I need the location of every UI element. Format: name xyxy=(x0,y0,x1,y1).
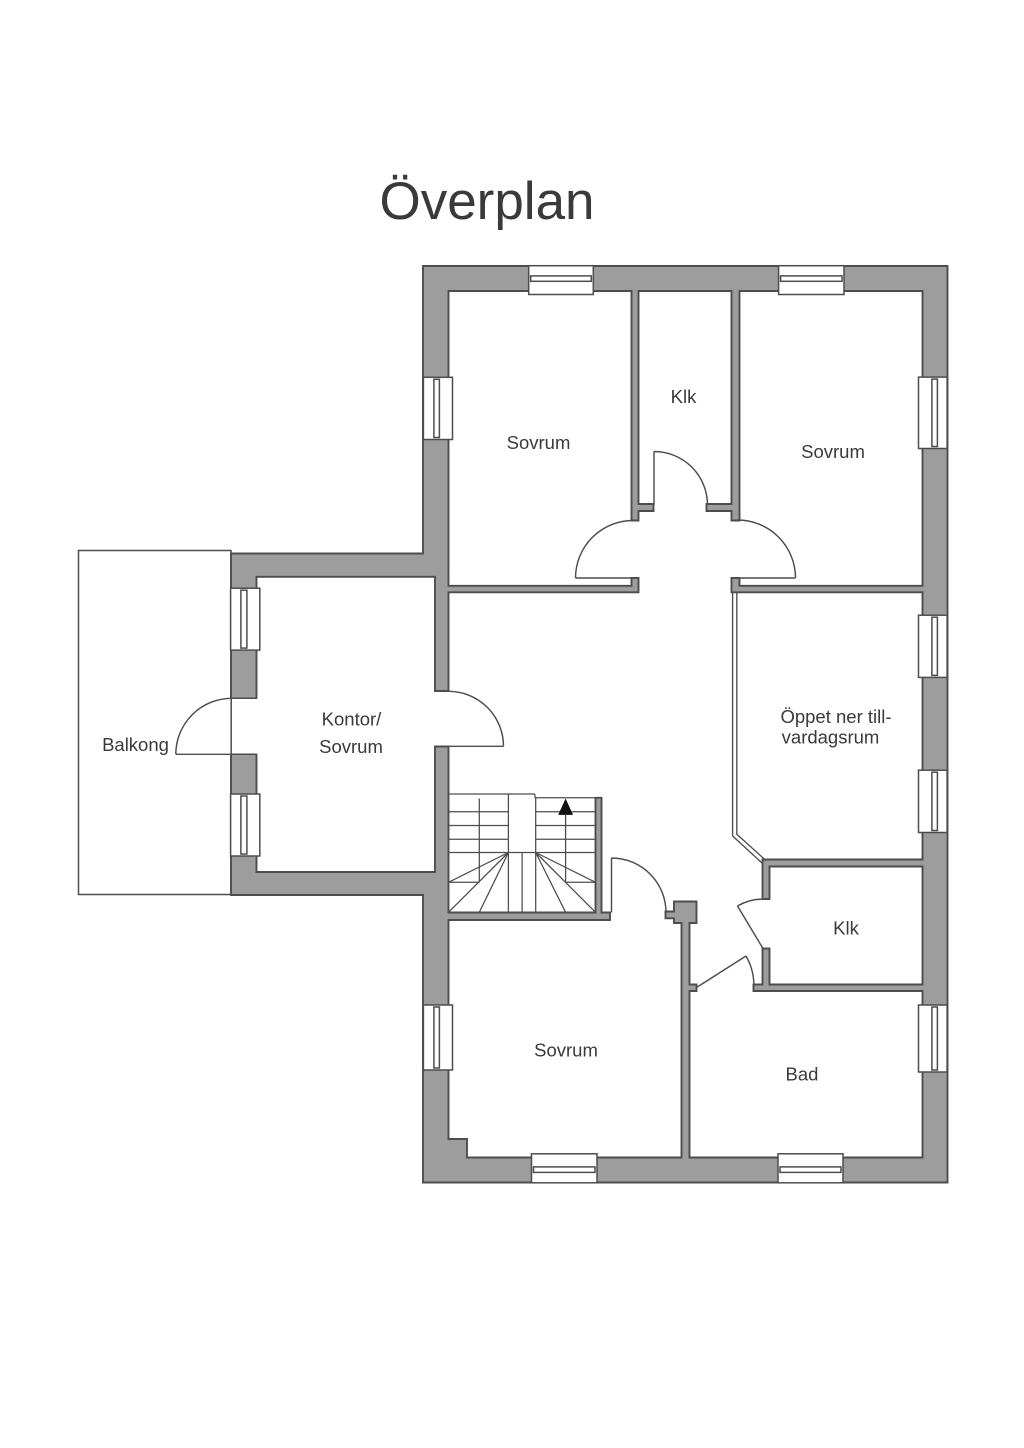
svg-text:Sovrum: Sovrum xyxy=(534,1040,598,1061)
svg-text:Balkong: Balkong xyxy=(102,734,169,755)
svg-text:Öppet ner till-: Öppet ner till- xyxy=(780,706,891,727)
svg-text:Sovrum: Sovrum xyxy=(801,441,865,462)
svg-text:Bad: Bad xyxy=(786,1064,819,1085)
svg-text:Sovrum: Sovrum xyxy=(319,736,383,757)
svg-text:Överplan: Överplan xyxy=(379,172,594,231)
svg-text:Sovrum: Sovrum xyxy=(507,432,571,453)
svg-text:Klk: Klk xyxy=(671,386,697,407)
svg-text:vardagsrum: vardagsrum xyxy=(782,727,880,748)
svg-text:Kontor/: Kontor/ xyxy=(322,709,383,730)
svg-text:Klk: Klk xyxy=(833,918,859,939)
